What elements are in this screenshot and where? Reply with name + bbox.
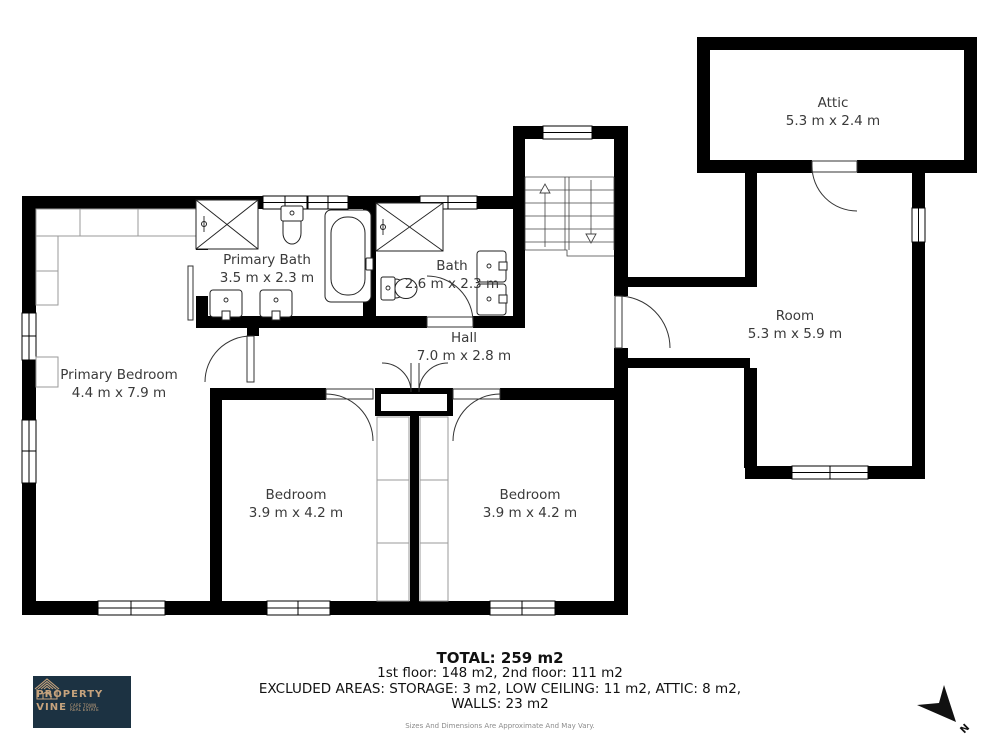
shower-icon — [376, 203, 443, 251]
room-dims: 3.9 m x 4.2 m — [483, 504, 577, 522]
room-label-bedroom-left: Bedroom 3.9 m x 4.2 m — [249, 486, 343, 522]
window — [308, 196, 348, 209]
room-dims: 3.9 m x 4.2 m — [249, 504, 343, 522]
storage-double-doors — [382, 363, 448, 392]
room-label-hall: Hall 7.0 m x 2.8 m — [417, 329, 511, 365]
logo-house-icon — [33, 676, 61, 702]
window — [22, 420, 36, 483]
window — [912, 208, 925, 242]
property-vine-logo: PROPERTY VINE CAPE TOWN REAL ESTATE — [33, 676, 131, 728]
hall-room-door — [615, 296, 670, 348]
window — [543, 126, 592, 139]
room-dims: 5.3 m x 5.9 m — [748, 325, 842, 343]
sink-icon — [260, 290, 292, 320]
logo-name-line2: VINE — [36, 702, 67, 713]
bedroom-left-door — [326, 389, 373, 441]
room-name: Bath — [405, 257, 499, 275]
room-dims: 4.4 m x 7.9 m — [60, 384, 178, 402]
room-dims: 2.6 m x 2.3 m — [405, 275, 499, 293]
floorplan-page: N Attic 5.3 m x 2.4 m Room 5.3 m x 5.9 m… — [0, 0, 1000, 750]
bathtub-icon — [325, 210, 373, 302]
window — [98, 601, 165, 615]
room-name: Primary Bedroom — [60, 366, 178, 384]
room-name: Hall — [417, 329, 511, 347]
attic-door — [812, 161, 857, 211]
room-dims: 5.3 m x 2.4 m — [786, 112, 880, 130]
room-label-bath: Bath 2.6 m x 2.3 m — [405, 257, 499, 293]
room-name: Bedroom — [483, 486, 577, 504]
window — [267, 601, 330, 615]
window — [792, 466, 868, 479]
room-name: Bedroom — [249, 486, 343, 504]
bedroom-right-door — [453, 389, 500, 441]
room-dims: 3.5 m x 2.3 m — [220, 269, 314, 287]
room-label-primary-bedroom: Primary Bedroom 4.4 m x 7.9 m — [60, 366, 178, 402]
room-label-primary-bath: Primary Bath 3.5 m x 2.3 m — [220, 251, 314, 287]
summary-total: TOTAL: 259 m2 — [0, 650, 1000, 666]
room-dims: 7.0 m x 2.8 m — [417, 347, 511, 365]
primary-bath-door — [188, 266, 193, 320]
logo-tagline: CAPE TOWN REAL ESTATE — [70, 704, 99, 712]
stairs-icon — [525, 177, 614, 256]
summary-floors: 1st floor: 148 m2, 2nd floor: 111 m2 — [0, 666, 1000, 682]
summary-block: TOTAL: 259 m2 1st floor: 148 m2, 2nd flo… — [0, 650, 1000, 731]
room-label-bedroom-right: Bedroom 3.9 m x 4.2 m — [483, 486, 577, 522]
logo-tagline-line2: REAL ESTATE — [70, 708, 99, 712]
primary-bedroom-door — [205, 336, 254, 382]
room-label-attic: Attic 5.3 m x 2.4 m — [786, 94, 880, 130]
room-name: Primary Bath — [220, 251, 314, 269]
shower-icon — [196, 200, 258, 249]
window — [490, 601, 555, 615]
sink-icon — [210, 290, 242, 320]
summary-excluded: EXCLUDED AREAS: STORAGE: 3 m2, LOW CEILI… — [0, 682, 1000, 698]
room-name: Room — [748, 307, 842, 325]
room-label-room: Room 5.3 m x 5.9 m — [748, 307, 842, 343]
toilet-icon — [281, 206, 303, 244]
summary-walls: WALLS: 23 m2 — [0, 697, 1000, 713]
window — [22, 313, 36, 360]
summary-disclaimer: Sizes And Dimensions Are Approximate And… — [0, 722, 1000, 731]
room-name: Attic — [786, 94, 880, 112]
